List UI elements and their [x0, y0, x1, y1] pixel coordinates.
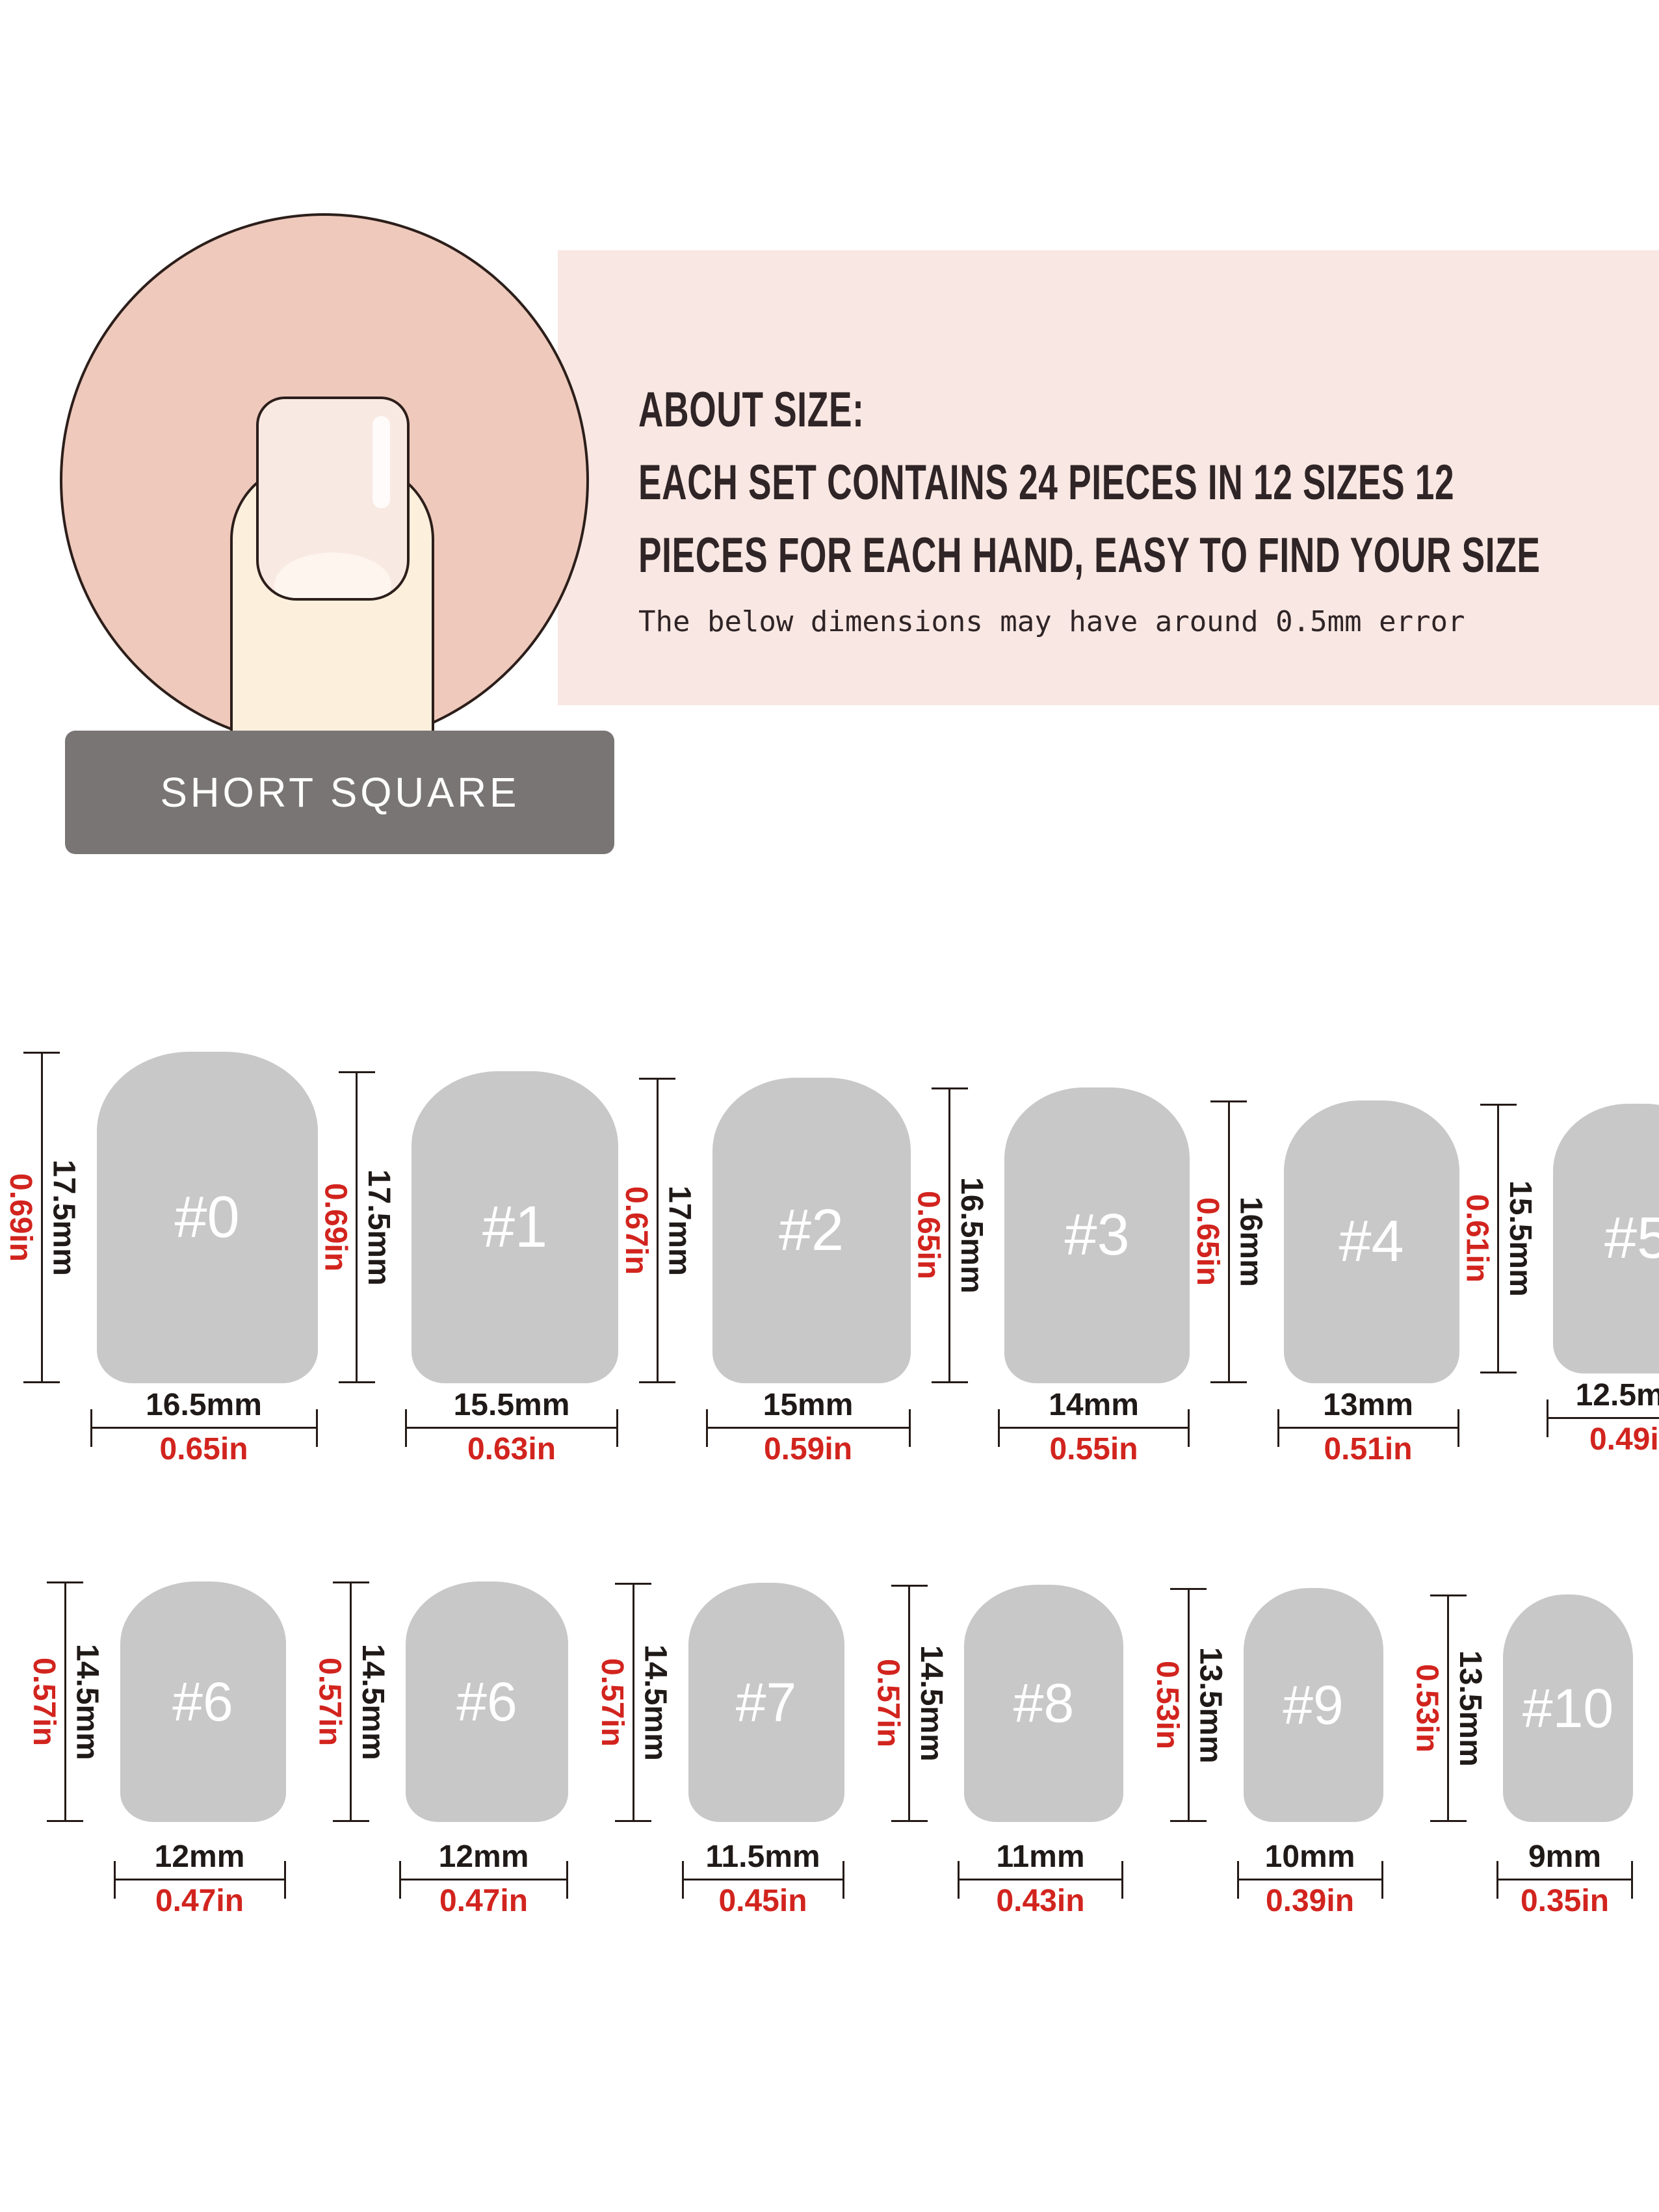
nail-number: #8 [1013, 1672, 1074, 1735]
nail-shape: #0 [97, 1052, 318, 1383]
nail-number: #3 [1064, 1202, 1129, 1269]
width-measure-line [682, 1879, 844, 1880]
nail-size-cell: 0.65in 16.5mm #3 14mm 0.55in [911, 1087, 1190, 1465]
height-mm: 13.5mm [1193, 1647, 1228, 1763]
height-measure-line [350, 1581, 352, 1822]
height-mm: 17mm [662, 1186, 697, 1276]
height-measure: 0.65in 16.5mm [911, 1087, 989, 1383]
width-measure-line [1547, 1417, 1659, 1419]
width-measure: 12mm 0.47in [114, 1841, 286, 1917]
nail-number: #1 [482, 1194, 547, 1261]
width-mm: 12mm [439, 1841, 529, 1873]
about-size-line3: PIECES FOR EACH HAND, EASY TO FIND YOUR … [638, 519, 1541, 592]
nail-number: #10 [1522, 1677, 1613, 1740]
shape-name-banner: SHORT SQUARE [65, 731, 614, 854]
width-measure: 12.5mm 0.49in [1547, 1380, 1659, 1455]
height-inches: 0.65in [911, 1191, 946, 1279]
nail-shape: #8 [964, 1585, 1123, 1822]
size-guide-infographic: SHORT SQUARE ABOUT SIZE: EACH SET CONTAI… [0, 0, 1659, 2212]
width-inches: 0.51in [1324, 1434, 1412, 1465]
height-measure: 0.69in 17.5mm [3, 1052, 81, 1383]
nail-size-cell: 0.69in 17.5mm #1 15.5mm 0.63in [318, 1071, 619, 1465]
nail-size-cell: 0.67in 17mm #2 15mm 0.59in [618, 1078, 911, 1465]
width-mm: 14mm [1049, 1390, 1139, 1421]
nail-size-cell: 0.65in 16mm #4 13mm 0.51in [1190, 1100, 1459, 1465]
height-measure-line [64, 1581, 66, 1822]
height-measure: 0.67in 17mm [618, 1078, 697, 1383]
height-mm: 17.5mm [46, 1160, 81, 1276]
height-measure-line [1188, 1588, 1190, 1822]
nail-size-cell: 0.57in 14.5mm #6 12mm 0.47in [26, 1581, 286, 1917]
width-inches: 0.35in [1521, 1886, 1609, 1917]
nail-number: #5 [1604, 1205, 1659, 1272]
height-inches: 0.57in [26, 1658, 61, 1746]
width-measure-line [90, 1427, 318, 1429]
height-mm: 14.5mm [355, 1644, 390, 1760]
nail-shape: #1 [411, 1071, 618, 1383]
height-measure-line [1447, 1594, 1449, 1822]
width-measure-line [1277, 1427, 1459, 1429]
height-mm: 13.5mm [1452, 1650, 1487, 1767]
height-inches: 0.53in [1409, 1664, 1444, 1752]
height-measure: 0.53in 13.5mm [1409, 1594, 1488, 1822]
nail-shape: #2 [712, 1078, 911, 1383]
nail-number: #2 [779, 1197, 844, 1264]
height-mm: 15.5mm [1502, 1180, 1537, 1297]
width-measure: 13mm 0.51in [1277, 1390, 1459, 1465]
height-mm: 16mm [1233, 1197, 1268, 1287]
width-measure: 15.5mm 0.63in [405, 1390, 618, 1465]
nail-size-cell: 0.57in 14.5mm #7 11.5mm 0.45in [594, 1583, 844, 1917]
nail-lunula-highlight [274, 553, 391, 601]
width-inches: 0.63in [467, 1434, 556, 1465]
width-measure-line [706, 1427, 911, 1429]
height-mm: 17.5mm [361, 1169, 396, 1286]
width-mm: 16.5mm [146, 1390, 262, 1421]
width-inches: 0.55in [1049, 1434, 1138, 1465]
width-mm: 11.5mm [705, 1841, 820, 1873]
height-inches: 0.61in [1459, 1194, 1495, 1282]
height-measure: 0.69in 17.5mm [318, 1071, 397, 1383]
nail-size-cell: 0.57in 14.5mm #8 11mm 0.43in [870, 1585, 1124, 1917]
height-measure-line [41, 1052, 43, 1383]
height-mm: 14.5mm [638, 1645, 673, 1761]
width-measure-line [958, 1879, 1123, 1880]
width-measure: 11.5mm 0.45in [682, 1841, 844, 1917]
width-measure-line [1496, 1879, 1633, 1880]
width-mm: 13mm [1323, 1390, 1413, 1421]
nail-size-cell: 0.69in 17.5mm #0 16.5mm 0.65in [3, 1052, 318, 1465]
width-inches: 0.47in [439, 1886, 528, 1917]
height-mm: 14.5mm [913, 1645, 948, 1762]
width-inches: 0.47in [155, 1886, 244, 1917]
height-measure: 0.57in 14.5mm [594, 1583, 673, 1822]
height-inches: 0.53in [1149, 1661, 1184, 1749]
nail-shape: #10 [1503, 1594, 1633, 1822]
nail-number: #7 [736, 1671, 796, 1734]
width-measure: 10mm 0.39in [1237, 1841, 1383, 1917]
nail-shape: #4 [1284, 1100, 1459, 1383]
height-inches: 0.69in [3, 1173, 38, 1262]
height-measure: 0.57in 14.5mm [312, 1581, 391, 1822]
nail-number: #0 [174, 1184, 239, 1251]
width-measure-line [114, 1879, 286, 1880]
nail-gloss-highlight [372, 416, 390, 508]
width-measure-line [405, 1427, 618, 1429]
width-measure: 16.5mm 0.65in [90, 1390, 318, 1465]
width-inches: 0.45in [718, 1886, 807, 1917]
height-measure-line [1228, 1100, 1230, 1383]
nail-number: #6 [172, 1671, 233, 1734]
height-measure: 0.61in 15.5mm [1459, 1104, 1538, 1373]
nail-size-cell: 0.53in 13.5mm #10 9mm 0.35in [1409, 1594, 1634, 1917]
height-measure: 0.57in 14.5mm [26, 1581, 105, 1822]
width-inches: 0.65in [159, 1434, 248, 1465]
height-measure-line [1497, 1104, 1499, 1373]
nail-shape: #9 [1244, 1588, 1383, 1822]
width-inches: 0.49in [1589, 1424, 1659, 1455]
width-measure-line [998, 1427, 1190, 1429]
width-inches: 0.43in [996, 1886, 1084, 1917]
width-measure: 14mm 0.55in [998, 1390, 1190, 1465]
nail-shape: #6 [406, 1581, 568, 1822]
height-measure-line [633, 1583, 634, 1822]
nail-size-cell: 0.53in 13.5mm #9 10mm 0.39in [1149, 1588, 1383, 1917]
height-measure-line [657, 1078, 659, 1383]
height-inches: 0.57in [870, 1659, 906, 1747]
height-inches: 0.57in [312, 1658, 347, 1746]
height-measure-line [356, 1071, 358, 1383]
nail-number: #4 [1339, 1208, 1404, 1275]
width-inches: 0.39in [1266, 1886, 1354, 1917]
about-size-note: The below dimensions may have around 0.5… [638, 601, 1659, 643]
nail-number: #9 [1283, 1674, 1343, 1737]
width-measure-line [399, 1879, 568, 1880]
height-measure-line [948, 1087, 950, 1383]
nail-number: #6 [456, 1671, 517, 1734]
width-inches: 0.59in [764, 1434, 852, 1465]
width-mm: 12mm [155, 1841, 245, 1873]
about-size-text-block: ABOUT SIZE: EACH SET CONTAINS 24 PIECES … [638, 374, 1659, 643]
height-measure: 0.57in 14.5mm [870, 1585, 949, 1822]
nail-shape: #6 [120, 1581, 286, 1822]
height-inches: 0.69in [318, 1183, 353, 1271]
about-size-title: ABOUT SIZE: [638, 374, 1541, 447]
width-measure-line [1237, 1879, 1383, 1880]
nail-size-cell: 0.57in 14.5mm #6 12mm 0.47in [312, 1581, 569, 1917]
height-inches: 0.57in [594, 1658, 629, 1747]
nail-plate-illustration [256, 397, 410, 601]
width-mm: 11mm [996, 1841, 1084, 1873]
height-mm: 16.5mm [954, 1177, 989, 1294]
width-mm: 10mm [1265, 1841, 1355, 1873]
size-row-2: 0.57in 14.5mm #6 12mm 0.47in 0.57in 14 [0, 1581, 1659, 1917]
width-measure: 15mm 0.59in [706, 1390, 911, 1465]
shape-name-text: SHORT SQUARE [160, 768, 519, 816]
height-measure: 0.53in 13.5mm [1149, 1588, 1228, 1822]
width-mm: 15mm [763, 1390, 854, 1421]
height-mm: 14.5mm [70, 1644, 105, 1760]
height-measure-line [908, 1585, 910, 1822]
nail-shape: #5 [1553, 1104, 1659, 1373]
height-inches: 0.67in [618, 1186, 653, 1275]
width-measure: 12mm 0.47in [399, 1841, 568, 1917]
nail-size-cell: 0.61in 15.5mm #5 12.5mm 0.49in [1459, 1104, 1659, 1455]
width-mm: 9mm [1528, 1841, 1601, 1873]
height-inches: 0.65in [1190, 1197, 1225, 1286]
size-row-1: 0.69in 17.5mm #0 16.5mm 0.65in 0.69in [0, 1052, 1659, 1465]
width-mm: 12.5mm [1576, 1380, 1659, 1411]
nail-shape: #7 [688, 1583, 844, 1822]
width-mm: 15.5mm [454, 1390, 570, 1421]
width-measure: 11mm 0.43in [958, 1841, 1123, 1917]
width-measure: 9mm 0.35in [1496, 1841, 1633, 1917]
nail-shape: #3 [1004, 1087, 1190, 1383]
height-measure: 0.65in 16mm [1190, 1100, 1268, 1383]
about-size-line2: EACH SET CONTAINS 24 PIECES IN 12 SIZES … [638, 447, 1541, 519]
